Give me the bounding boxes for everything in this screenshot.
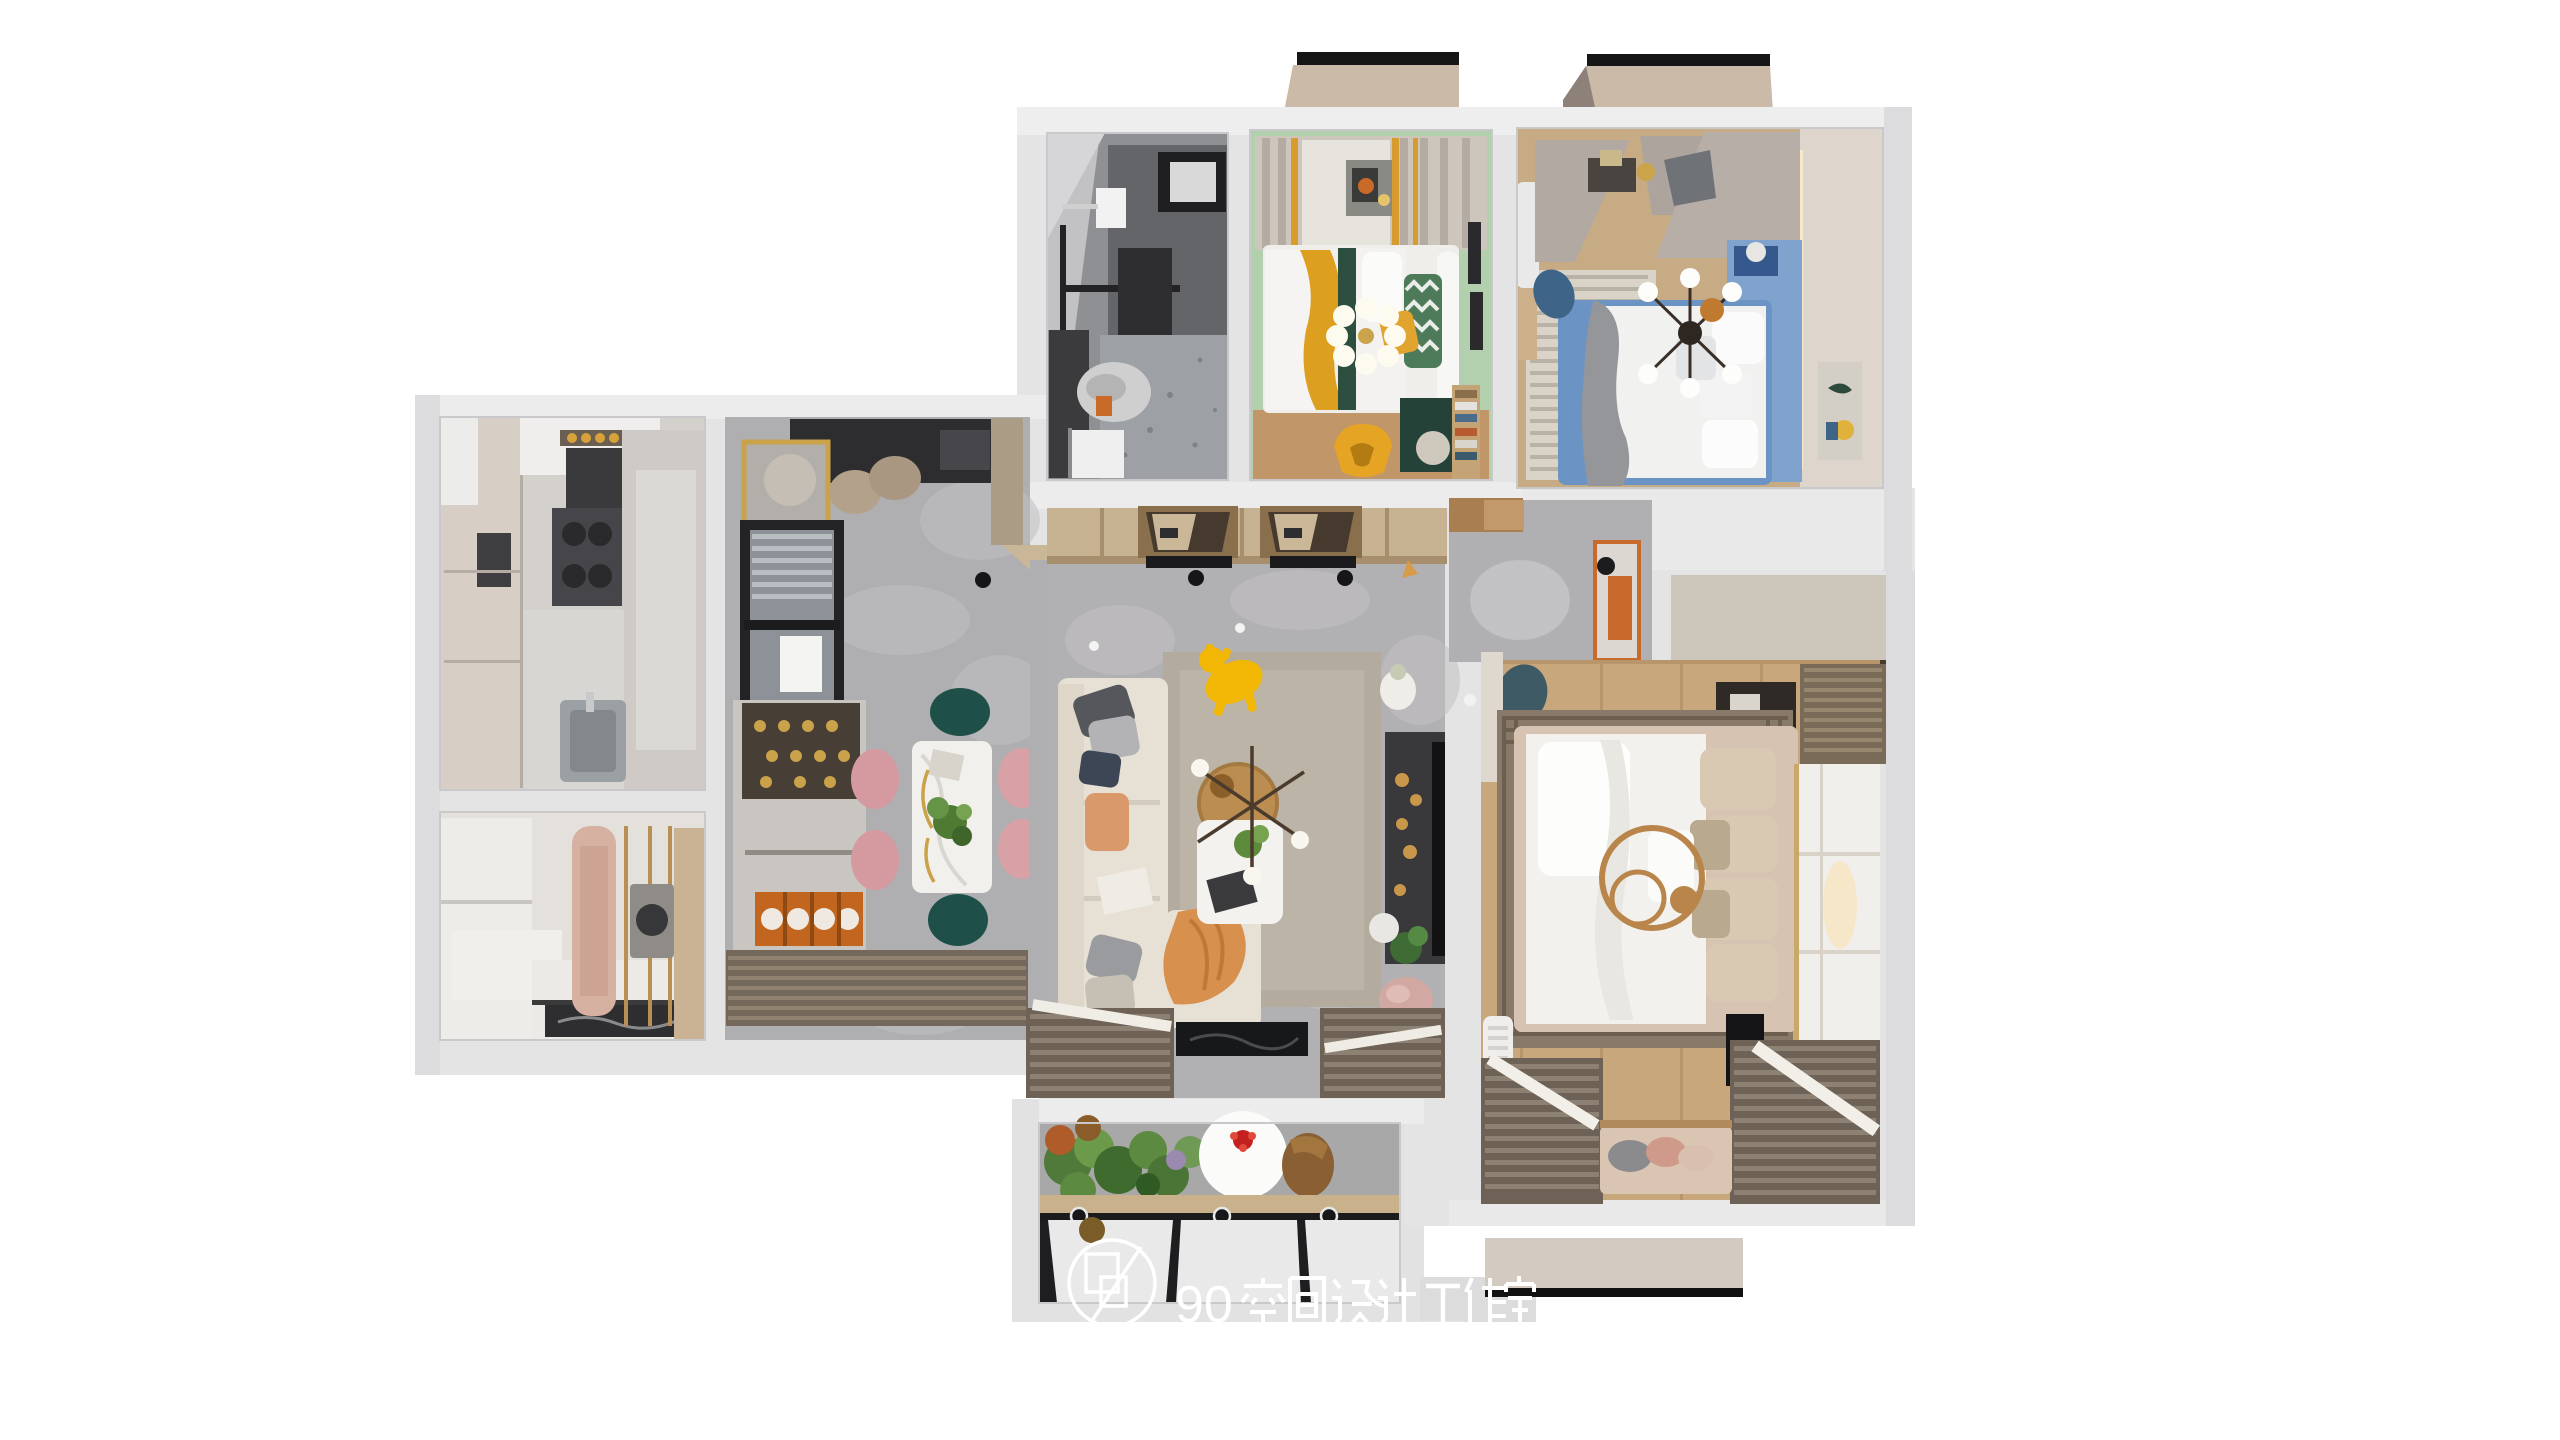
- svg-text:90: 90: [1175, 1276, 1233, 1334]
